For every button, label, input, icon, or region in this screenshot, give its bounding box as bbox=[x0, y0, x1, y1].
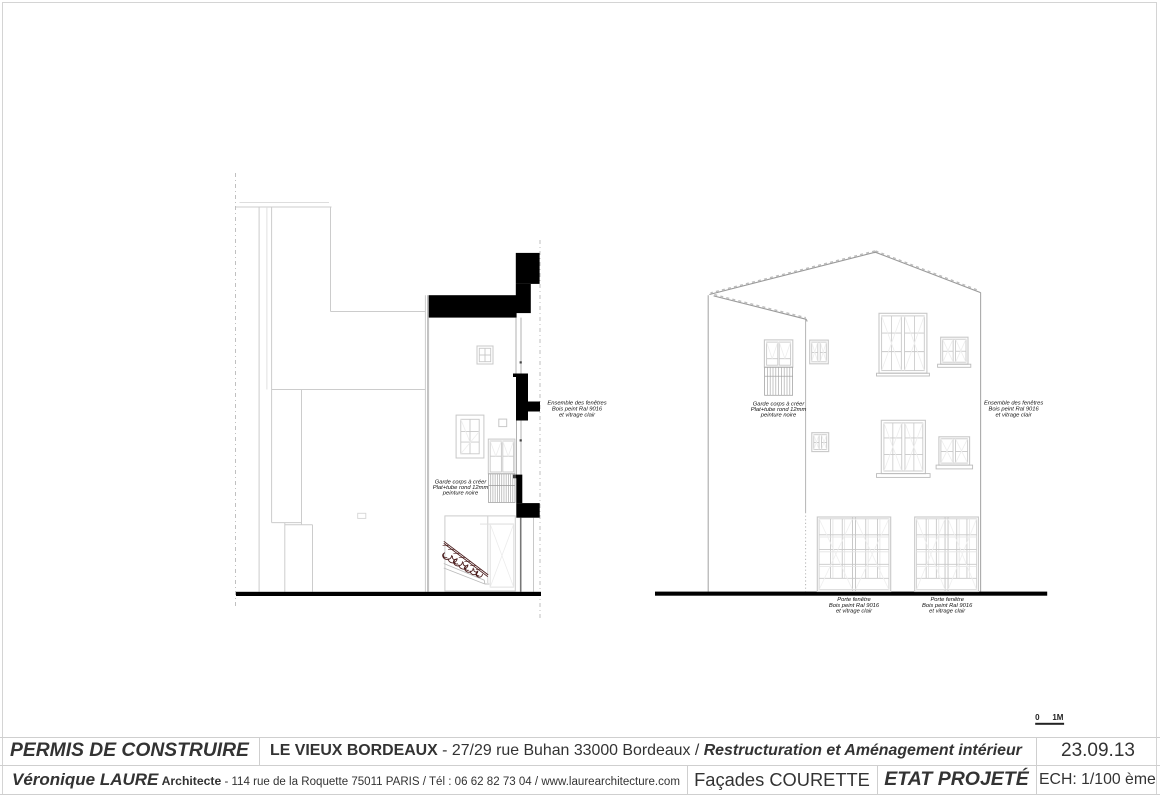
svg-text:0: 0 bbox=[1035, 713, 1040, 722]
svg-text:et vitrage clair: et vitrage clair bbox=[836, 609, 873, 615]
svg-text:et vitrage clair: et vitrage clair bbox=[559, 412, 596, 418]
svg-text:peinture noire: peinture noire bbox=[442, 491, 479, 497]
svg-text:1M: 1M bbox=[1052, 713, 1063, 722]
svg-text:Ensemble des fenêtres: Ensemble des fenêtres bbox=[547, 401, 606, 407]
svg-text:et vitrage clair: et vitrage clair bbox=[996, 412, 1033, 418]
svg-text:peinture noire: peinture noire bbox=[760, 413, 797, 419]
svg-text:et vitrage clair: et vitrage clair bbox=[929, 609, 966, 615]
svg-text:Ensemble des fenêtres: Ensemble des fenêtres bbox=[984, 401, 1043, 407]
